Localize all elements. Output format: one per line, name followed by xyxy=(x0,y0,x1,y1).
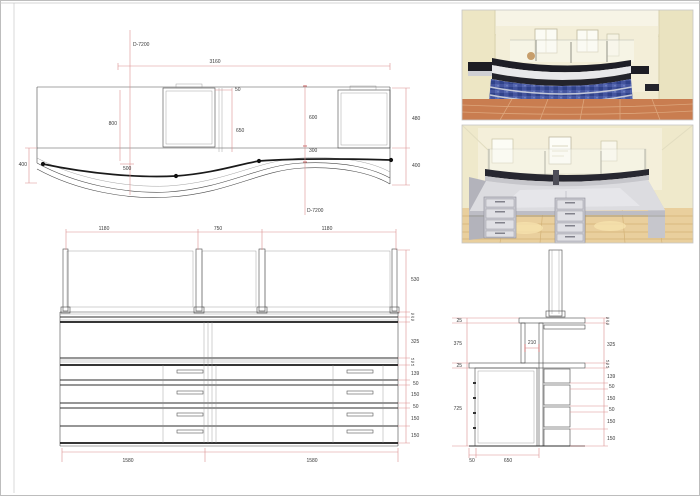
plan-monitor-left xyxy=(163,84,215,147)
dim-label: 400 xyxy=(412,163,421,169)
dim-label: 530 xyxy=(411,277,420,283)
dim-label: 600 xyxy=(309,115,318,121)
dim-label: 150 xyxy=(607,436,616,442)
dim-label: 150 xyxy=(607,419,616,425)
dim-label: 725 xyxy=(454,406,463,412)
dim-label: 150 xyxy=(411,433,420,439)
plan-view: 3160 D-7200 D-7200 800 500 50 650 600 30… xyxy=(19,30,421,215)
render-rear-view-image xyxy=(462,125,693,243)
plan-dimensions: 3160 D-7200 D-7200 800 500 50 650 600 30… xyxy=(19,30,421,215)
dim-label: 750 xyxy=(214,226,223,232)
plan-monitor-right xyxy=(338,86,390,148)
grab-rail xyxy=(43,159,391,177)
dim-label: 1580 xyxy=(306,458,317,464)
dim-label: 50 xyxy=(411,318,415,322)
cad-drawing: 3160 D-7200 D-7200 800 500 50 650 600 30… xyxy=(0,0,700,496)
dim-label: 18 xyxy=(411,363,415,367)
dim-label: 18 xyxy=(606,365,610,369)
datum-label: D-7200 xyxy=(307,208,324,214)
dim-label: 50 xyxy=(413,404,419,410)
dim-label: 50 xyxy=(606,322,610,326)
front-elevation: 1180 750 1180 1580 1580 530 50 20 50 325… xyxy=(60,226,420,464)
dim-label: 1580 xyxy=(122,458,133,464)
dim-label: 50 xyxy=(469,458,475,464)
dim-label: 325 xyxy=(411,339,420,345)
dim-label: 3160 xyxy=(209,59,220,65)
dim-label: 650 xyxy=(236,128,245,134)
pedestal-right xyxy=(555,198,585,243)
dim-label: 50 xyxy=(609,384,615,390)
dim-label: 139 xyxy=(607,374,616,380)
datum-label: D-7200 xyxy=(133,42,150,48)
drawing-sheet: 3160 D-7200 D-7200 800 500 50 650 600 30… xyxy=(0,0,700,496)
dim-label: 50 xyxy=(235,87,241,93)
dim-label: 1180 xyxy=(99,226,110,232)
counter-front xyxy=(60,312,398,446)
dim-label: 25 xyxy=(456,363,462,369)
glass-screens-render xyxy=(510,40,634,63)
dim-label: 400 xyxy=(19,162,28,168)
dim-label: 800 xyxy=(109,121,118,127)
front-dimensions: 1180 750 1180 1580 1580 530 50 20 50 325… xyxy=(62,226,420,464)
dim-label: 650 xyxy=(504,458,513,464)
dim-label: 139 xyxy=(411,371,420,377)
rail-posts xyxy=(41,158,393,178)
dim-label: 210 xyxy=(528,340,537,346)
dim-label: 300 xyxy=(309,148,318,154)
glass-screens xyxy=(61,249,399,313)
dim-label: 50 xyxy=(413,381,419,387)
render-front-view-image xyxy=(462,10,693,120)
dim-label: 1180 xyxy=(322,226,333,232)
section-dimensions: 25 375 25 725 210 50 20 50 325 18 50 18 … xyxy=(452,316,616,464)
dim-label: 325 xyxy=(607,342,616,348)
dim-label: 480 xyxy=(412,116,421,122)
dim-label: 375 xyxy=(454,341,463,347)
person-head xyxy=(527,52,535,60)
dim-label: 25 xyxy=(456,318,462,324)
dim-label: 150 xyxy=(607,396,616,402)
dim-label: 500 xyxy=(123,166,132,172)
floor-terracotta xyxy=(462,99,693,120)
dim-label: 150 xyxy=(411,392,420,398)
dim-label: 50 xyxy=(609,407,615,413)
pedestal-left xyxy=(484,197,516,238)
dim-label: 150 xyxy=(411,416,420,422)
section-view: 25 375 25 725 210 50 20 50 325 18 50 18 … xyxy=(452,250,616,464)
